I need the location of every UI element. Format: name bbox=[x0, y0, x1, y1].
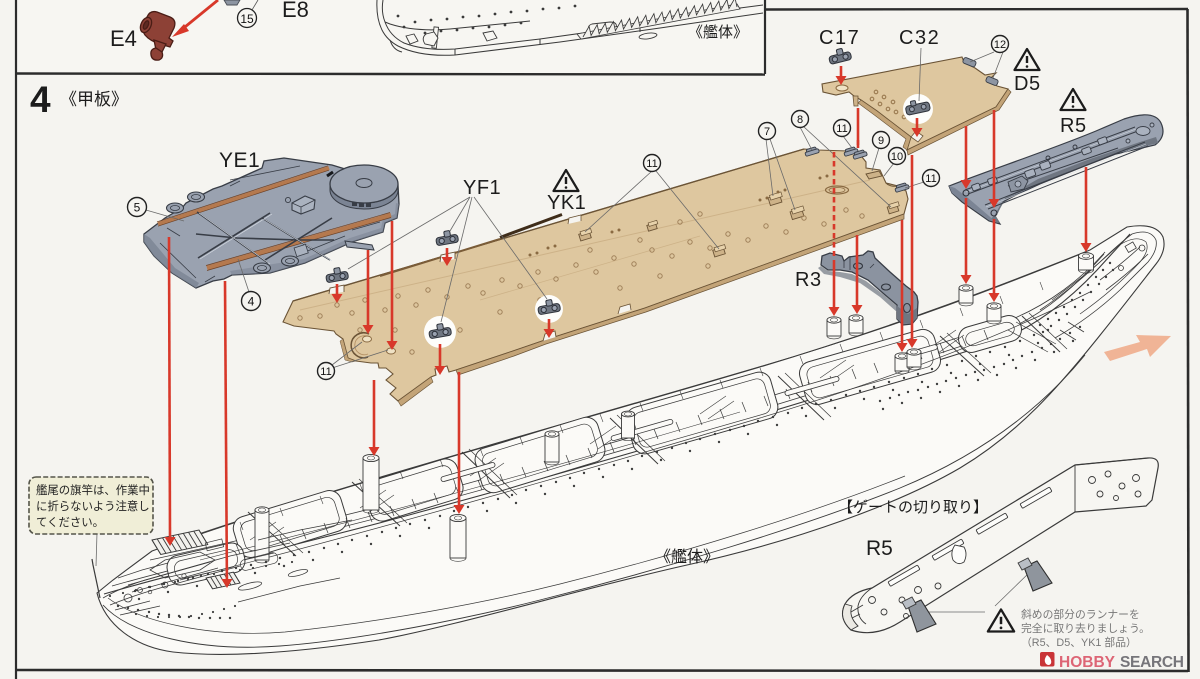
svg-text:11: 11 bbox=[925, 173, 936, 185]
svg-text:C17: C17 bbox=[819, 27, 860, 49]
svg-text:てください。: てください。 bbox=[36, 516, 104, 529]
svg-text:HOBBY: HOBBY bbox=[1059, 654, 1116, 671]
svg-text:15: 15 bbox=[240, 12, 254, 26]
svg-text:7: 7 bbox=[764, 126, 770, 138]
svg-text:YK1: YK1 bbox=[547, 192, 586, 214]
svg-text:（R5、D5、YK1 部品）: （R5、D5、YK1 部品） bbox=[1021, 635, 1137, 649]
svg-text:R5: R5 bbox=[1060, 115, 1087, 137]
svg-text:8: 8 bbox=[797, 114, 803, 126]
svg-text:11: 11 bbox=[836, 123, 847, 135]
svg-text:SEARCH: SEARCH bbox=[1120, 654, 1184, 671]
svg-text:に折らないよう注意し: に折らないよう注意し bbox=[36, 499, 150, 513]
svg-text:《艦体》: 《艦体》 bbox=[688, 24, 748, 41]
svg-text:4: 4 bbox=[248, 294, 255, 308]
svg-text:YF1: YF1 bbox=[463, 177, 501, 199]
svg-text:C32: C32 bbox=[899, 27, 940, 49]
svg-text:艦尾の旗竿は、作業中: 艦尾の旗竿は、作業中 bbox=[36, 483, 150, 497]
svg-text:《甲板》: 《甲板》 bbox=[60, 90, 128, 109]
svg-text:10: 10 bbox=[891, 151, 903, 163]
svg-text:YE1: YE1 bbox=[219, 149, 260, 172]
svg-text:9: 9 bbox=[878, 135, 884, 147]
svg-text:11: 11 bbox=[646, 158, 657, 170]
svg-text:11: 11 bbox=[320, 366, 331, 378]
svg-text:《艦体》: 《艦体》 bbox=[655, 548, 719, 566]
svg-text:5: 5 bbox=[134, 200, 141, 214]
svg-text:R5: R5 bbox=[866, 537, 893, 560]
svg-text:E8: E8 bbox=[282, 0, 309, 22]
svg-text:E4: E4 bbox=[110, 26, 137, 51]
svg-text:【ゲートの切り取り】: 【ゲートの切り取り】 bbox=[838, 499, 988, 516]
svg-text:斜めの部分のランナーを: 斜めの部分のランナーを bbox=[1021, 607, 1140, 621]
svg-text:4: 4 bbox=[30, 79, 51, 120]
svg-text:R3: R3 bbox=[795, 269, 822, 291]
svg-text:D5: D5 bbox=[1014, 73, 1041, 95]
svg-text:完全に取り去りましょう。: 完全に取り去りましょう。 bbox=[1021, 621, 1150, 635]
svg-text:12: 12 bbox=[994, 39, 1006, 51]
